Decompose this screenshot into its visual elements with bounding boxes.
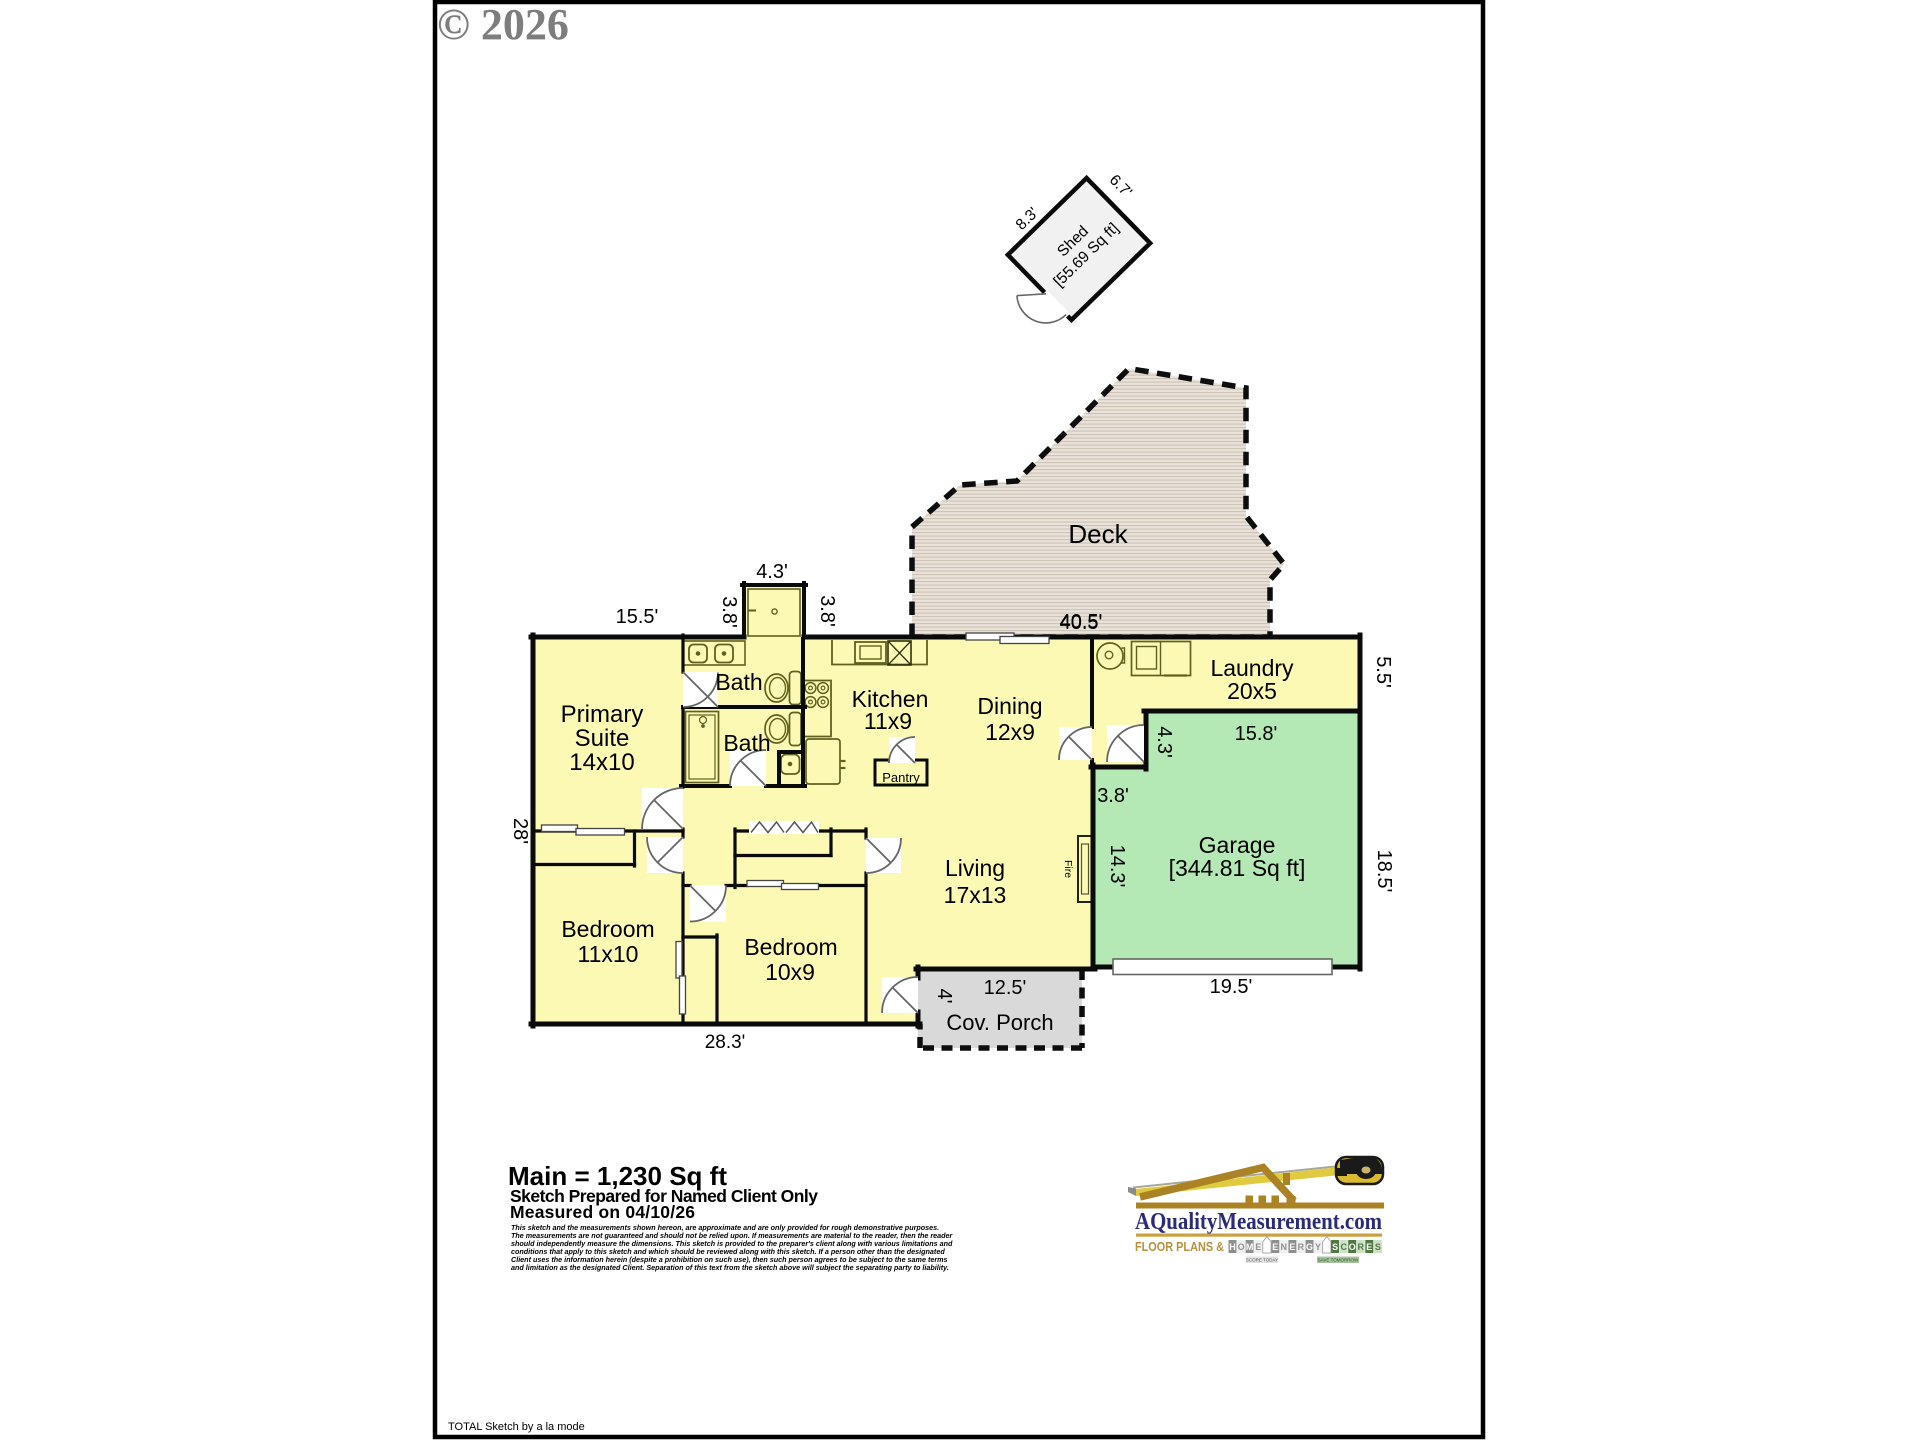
svg-text:4.3': 4.3' (756, 561, 788, 583)
svg-text:18.5': 18.5' (1373, 850, 1395, 893)
svg-text:Bath: Bath (723, 730, 770, 756)
svg-text:H: H (1229, 1242, 1236, 1252)
svg-text:11x10: 11x10 (578, 941, 639, 967)
svg-text:SCORE TODAY: SCORE TODAY (1246, 1258, 1278, 1263)
svg-text:E: E (1289, 1242, 1295, 1252)
svg-text:SAVE TOMORROW: SAVE TOMORROW (1318, 1258, 1359, 1263)
svg-text:14x10: 14x10 (569, 749, 634, 776)
svg-text:3.8': 3.8' (718, 596, 740, 628)
svg-text:Bath: Bath (715, 669, 762, 695)
svg-text:Pantry: Pantry (882, 770, 920, 785)
svg-text:AQualityMeasurement.com: AQualityMeasurement.com (1135, 1209, 1382, 1235)
svg-text:Dining: Dining (977, 693, 1042, 719)
svg-text:12.5': 12.5' (984, 977, 1027, 999)
svg-text:R: R (1358, 1242, 1365, 1252)
svg-text:Cov. Porch: Cov. Porch (946, 1010, 1053, 1035)
svg-text:E: E (1272, 1242, 1278, 1252)
svg-text:15.5': 15.5' (616, 606, 659, 628)
svg-text:40.5': 40.5' (1060, 612, 1103, 634)
svg-text:12x9: 12x9 (985, 719, 1035, 745)
svg-text:20x5: 20x5 (1227, 678, 1277, 704)
svg-text:19.5': 19.5' (1210, 976, 1253, 998)
svg-text:Living: Living (945, 855, 1005, 881)
svg-text:Primary: Primary (561, 701, 644, 728)
svg-text:R: R (1298, 1242, 1305, 1252)
svg-text:Y: Y (1315, 1242, 1321, 1252)
svg-text:Bedroom: Bedroom (744, 934, 837, 960)
svg-text:Deck: Deck (1068, 519, 1128, 549)
svg-text:17x13: 17x13 (944, 882, 1007, 908)
svg-text:E: E (1366, 1242, 1372, 1252)
svg-text:Suite: Suite (575, 725, 630, 752)
svg-text:3.8': 3.8' (1097, 785, 1129, 807)
svg-text:5.5': 5.5' (1372, 656, 1394, 688)
svg-text:Measured on 04/10/26: Measured on 04/10/26 (510, 1202, 695, 1222)
svg-text:N: N (1281, 1242, 1288, 1252)
svg-text:S: S (1375, 1242, 1381, 1252)
svg-text:FLOOR PLANS &: FLOOR PLANS & (1135, 1240, 1224, 1254)
svg-text:4': 4' (933, 989, 955, 1004)
svg-text:© 2026: © 2026 (437, 0, 569, 49)
svg-text:Bedroom: Bedroom (561, 916, 654, 942)
svg-text:and limitation as the designat: and limitation as the designated Client.… (511, 1263, 949, 1272)
svg-text:Fire: Fire (1062, 860, 1074, 878)
svg-text:S: S (1332, 1242, 1338, 1252)
svg-text:G: G (1306, 1242, 1313, 1252)
svg-text:11x9: 11x9 (864, 708, 912, 734)
svg-text:28': 28' (509, 818, 531, 844)
svg-text:C: C (1340, 1242, 1347, 1252)
svg-text:4.3': 4.3' (1153, 726, 1175, 758)
svg-text:O: O (1349, 1242, 1356, 1252)
svg-text:M: M (1246, 1242, 1254, 1252)
svg-text:15.8': 15.8' (1235, 723, 1278, 745)
svg-text:14.3': 14.3' (1106, 845, 1128, 888)
svg-text:10x9: 10x9 (765, 959, 815, 985)
svg-text:O: O (1238, 1242, 1245, 1252)
svg-text:TOTAL Sketch by a la mode: TOTAL Sketch by a la mode (448, 1421, 585, 1433)
svg-text:E: E (1255, 1242, 1261, 1252)
svg-text:3.8': 3.8' (816, 595, 838, 627)
svg-text:[344.81 Sq ft]: [344.81 Sq ft] (1169, 855, 1306, 881)
svg-text:28.3': 28.3' (705, 1032, 746, 1053)
